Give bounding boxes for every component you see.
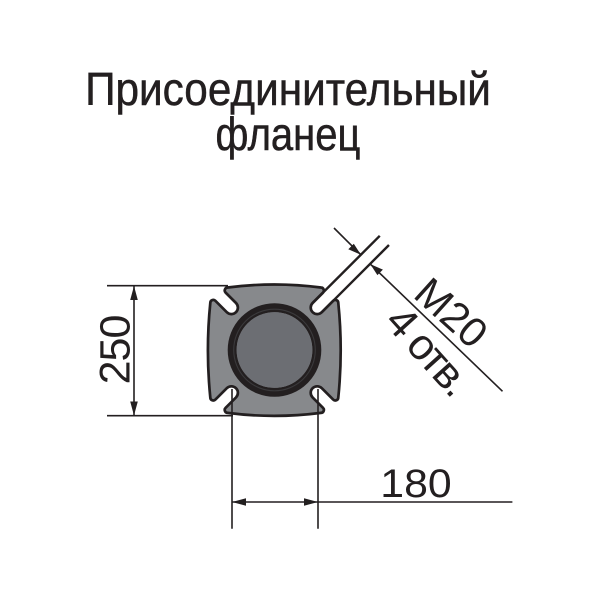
svg-text:250: 250	[92, 316, 140, 385]
svg-text:фланец: фланец	[216, 109, 361, 160]
svg-text:180: 180	[380, 461, 451, 505]
svg-text:Присоединительный: Присоединительный	[85, 64, 491, 115]
